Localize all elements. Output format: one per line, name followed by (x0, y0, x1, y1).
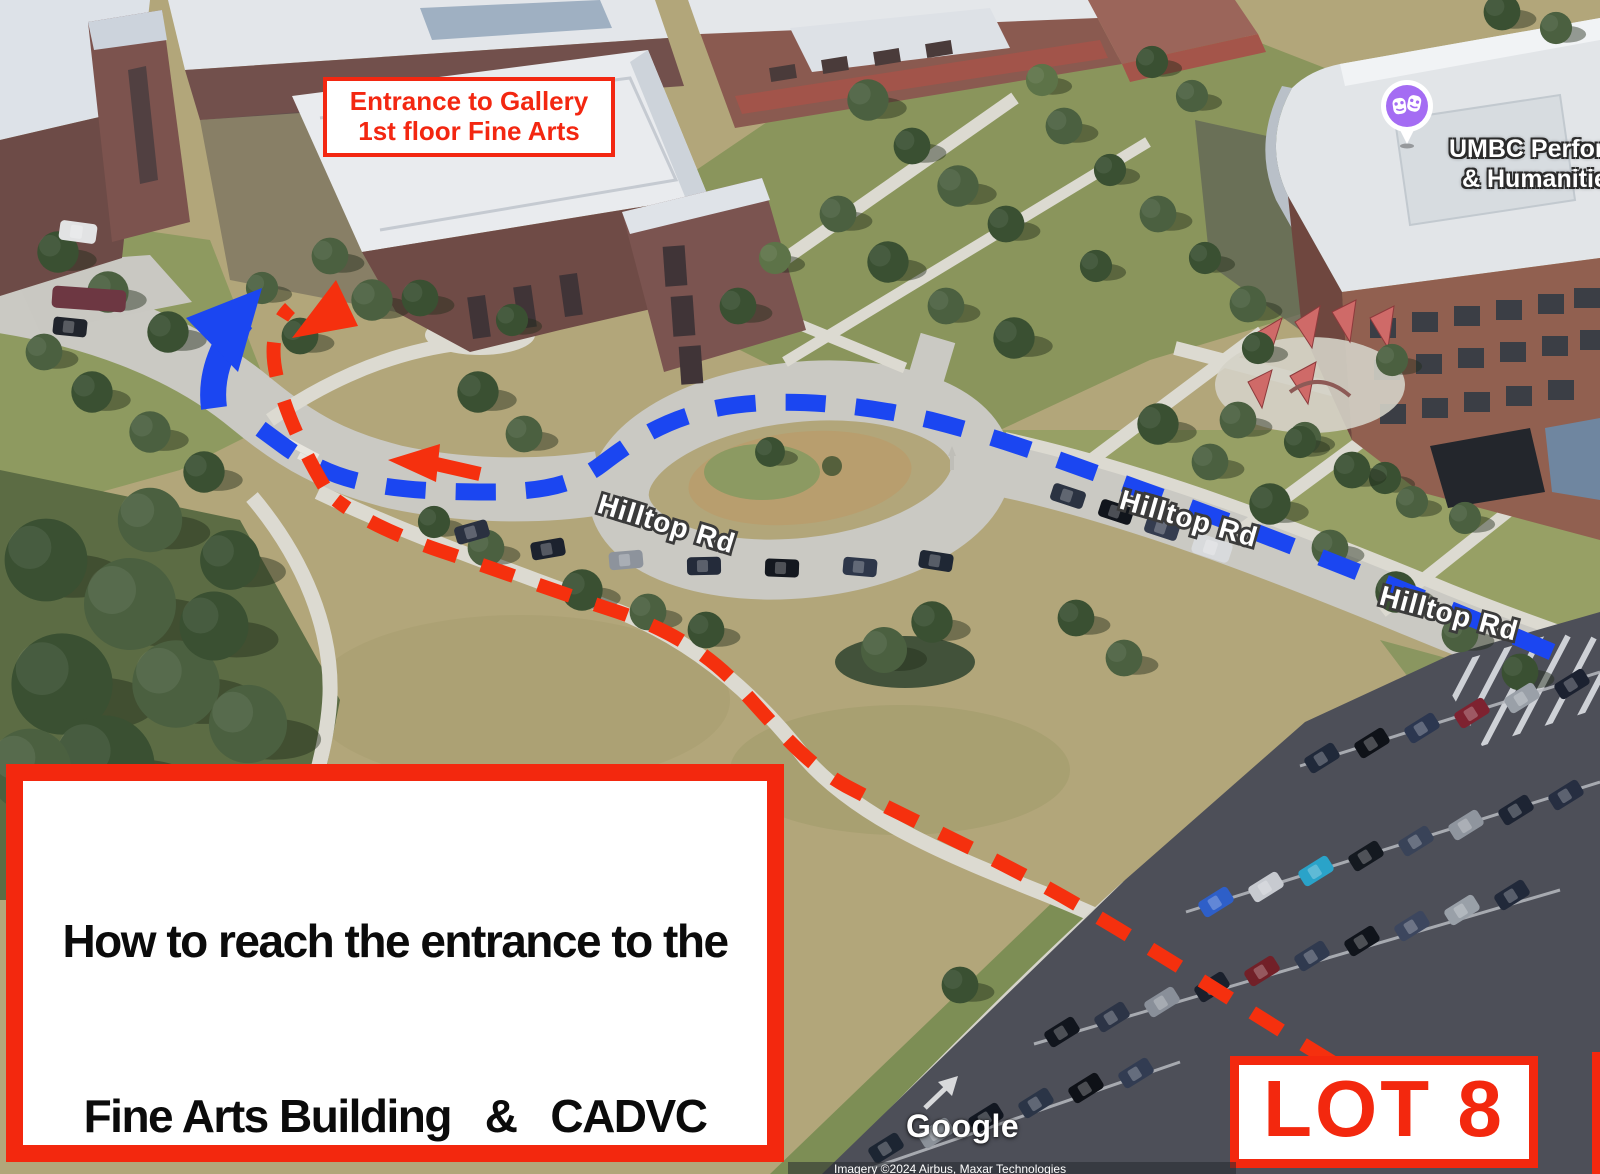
info-title-line2: Fine Arts Building & CADVC (23, 1087, 767, 1145)
imagery-attribution: Imagery ©2024 Airbus, Maxar Technologies (788, 1162, 1236, 1174)
cropped-red-box-edge (1592, 1052, 1600, 1174)
directions-info-box: How to reach the entrance to the Fine Ar… (6, 764, 784, 1162)
campus-map-screenshot: Hilltop Rd Hilltop Rd Hilltop Rd Entranc… (0, 0, 1600, 1174)
google-watermark: Google (906, 1108, 1019, 1145)
gallery-label-line1: Entrance to Gallery (331, 86, 607, 116)
gallery-label-line2: 1st floor Fine Arts (331, 116, 607, 146)
poi-building-label: UMBC Perfor & Humanitie (1449, 134, 1600, 194)
lot-8-text: LOT 8 (1263, 1063, 1505, 1155)
poi-label-line2: & Humanitie (1462, 164, 1600, 194)
lot-8-label: LOT 8 (1230, 1056, 1538, 1168)
info-title-line1: How to reach the entrance to the (23, 912, 767, 970)
gallery-entrance-label: Entrance to Gallery 1st floor Fine Arts (323, 77, 615, 157)
footpath-side-arrow-tail (436, 464, 480, 474)
poi-label-line1: UMBC Perfor (1449, 134, 1600, 164)
